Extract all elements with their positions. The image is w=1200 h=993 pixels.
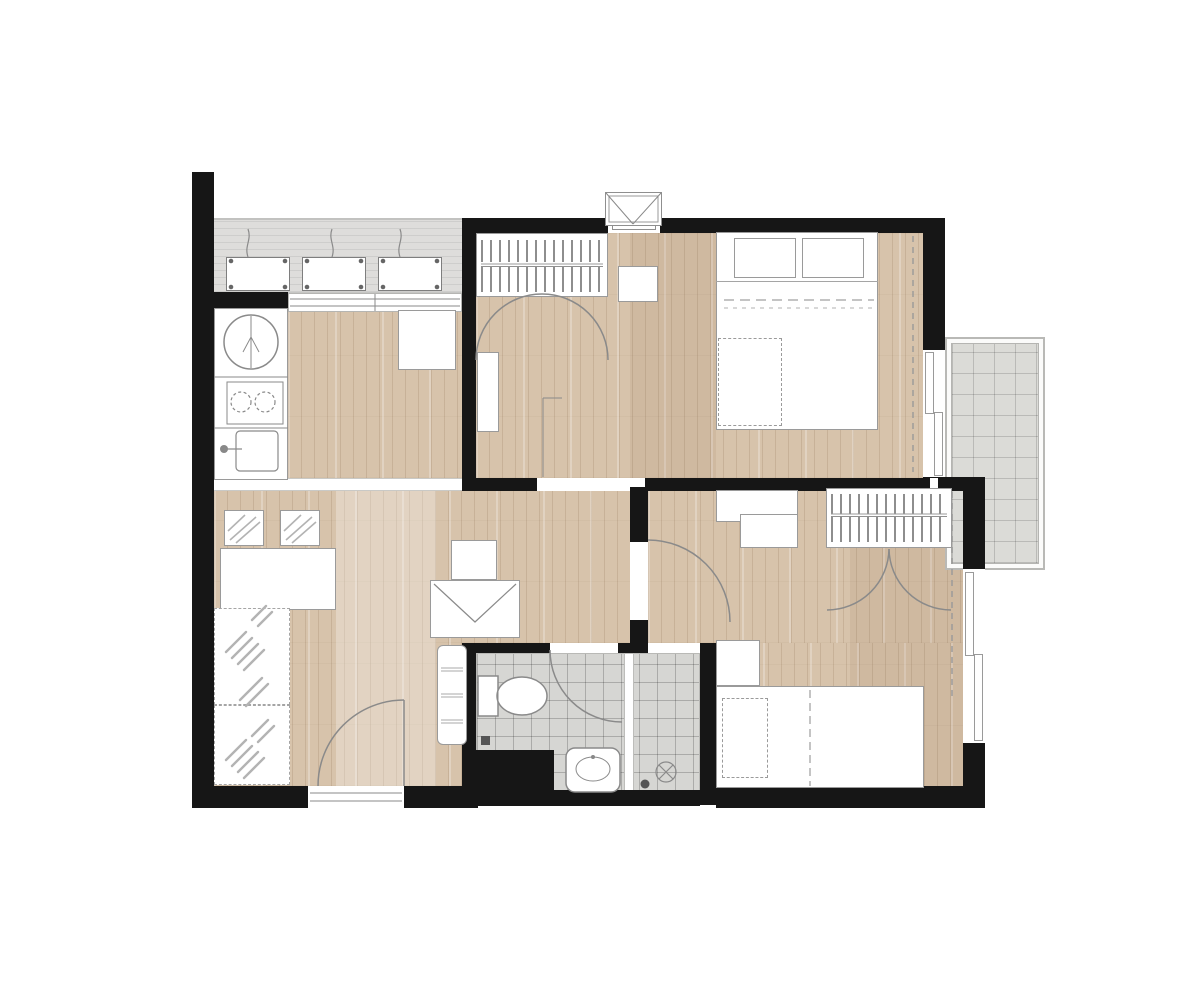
balcony-sliding-panel bbox=[925, 352, 934, 414]
wall-bottom-c bbox=[716, 786, 985, 808]
pillow bbox=[734, 238, 796, 278]
floor-plan bbox=[0, 0, 1200, 993]
wall-bathroom-top-b bbox=[618, 643, 648, 653]
wardrobe-hanging-clothes bbox=[831, 516, 947, 542]
dining-chair bbox=[224, 510, 264, 546]
living-door-window-opening bbox=[308, 786, 404, 808]
wall-top-b bbox=[660, 218, 945, 233]
wall-living-stub bbox=[462, 478, 537, 491]
pillow bbox=[722, 698, 768, 778]
pillow bbox=[802, 238, 864, 278]
desk bbox=[430, 580, 520, 638]
bedroom2-window-panel bbox=[965, 572, 974, 656]
wall-right-upper bbox=[923, 218, 945, 350]
ac-compressor-unit bbox=[302, 257, 366, 291]
mirror-cabinet bbox=[477, 352, 499, 432]
dining-table bbox=[220, 548, 336, 610]
ac-compressor-unit bbox=[226, 257, 290, 291]
wall-bottom-b bbox=[404, 786, 478, 808]
wall-bathroom-right bbox=[700, 643, 716, 805]
bedroom2-chair bbox=[740, 514, 798, 548]
kitchen-counter bbox=[214, 308, 288, 480]
wardrobe-hanging-clothes bbox=[481, 266, 603, 292]
wall-foyer-left bbox=[462, 218, 476, 478]
slim-cabinet bbox=[437, 645, 467, 745]
plant-mat bbox=[214, 705, 290, 785]
shower-partition bbox=[624, 653, 634, 792]
wood-light-band bbox=[336, 491, 436, 786]
wardrobe-hanging-clothes bbox=[481, 240, 603, 262]
dining-chair bbox=[280, 510, 320, 546]
wall-bathroom-block bbox=[476, 750, 554, 806]
wall-bathroom-bottom bbox=[554, 790, 700, 806]
plant-mat bbox=[214, 608, 290, 705]
wall-top-a bbox=[462, 218, 608, 233]
wall-bottom-a bbox=[192, 786, 308, 808]
wall-bedroom2-left-upper bbox=[630, 487, 648, 542]
balcony-sliding-panel bbox=[934, 412, 943, 476]
ac-compressor-unit bbox=[378, 257, 442, 291]
wall-left bbox=[192, 172, 214, 808]
bedroom2-nightstand bbox=[716, 640, 760, 686]
desk-chair bbox=[451, 540, 497, 580]
service-shaft-box bbox=[605, 192, 662, 226]
wall-bedroom2-right-upper bbox=[963, 477, 985, 569]
bedroom1-nightstand bbox=[618, 266, 658, 302]
bedroom2-window-panel bbox=[974, 654, 983, 741]
refrigerator bbox=[398, 310, 456, 370]
bed-runner bbox=[718, 338, 782, 426]
wall-ledge-bottom bbox=[214, 292, 288, 308]
wardrobe-hanging-clothes bbox=[831, 494, 947, 514]
